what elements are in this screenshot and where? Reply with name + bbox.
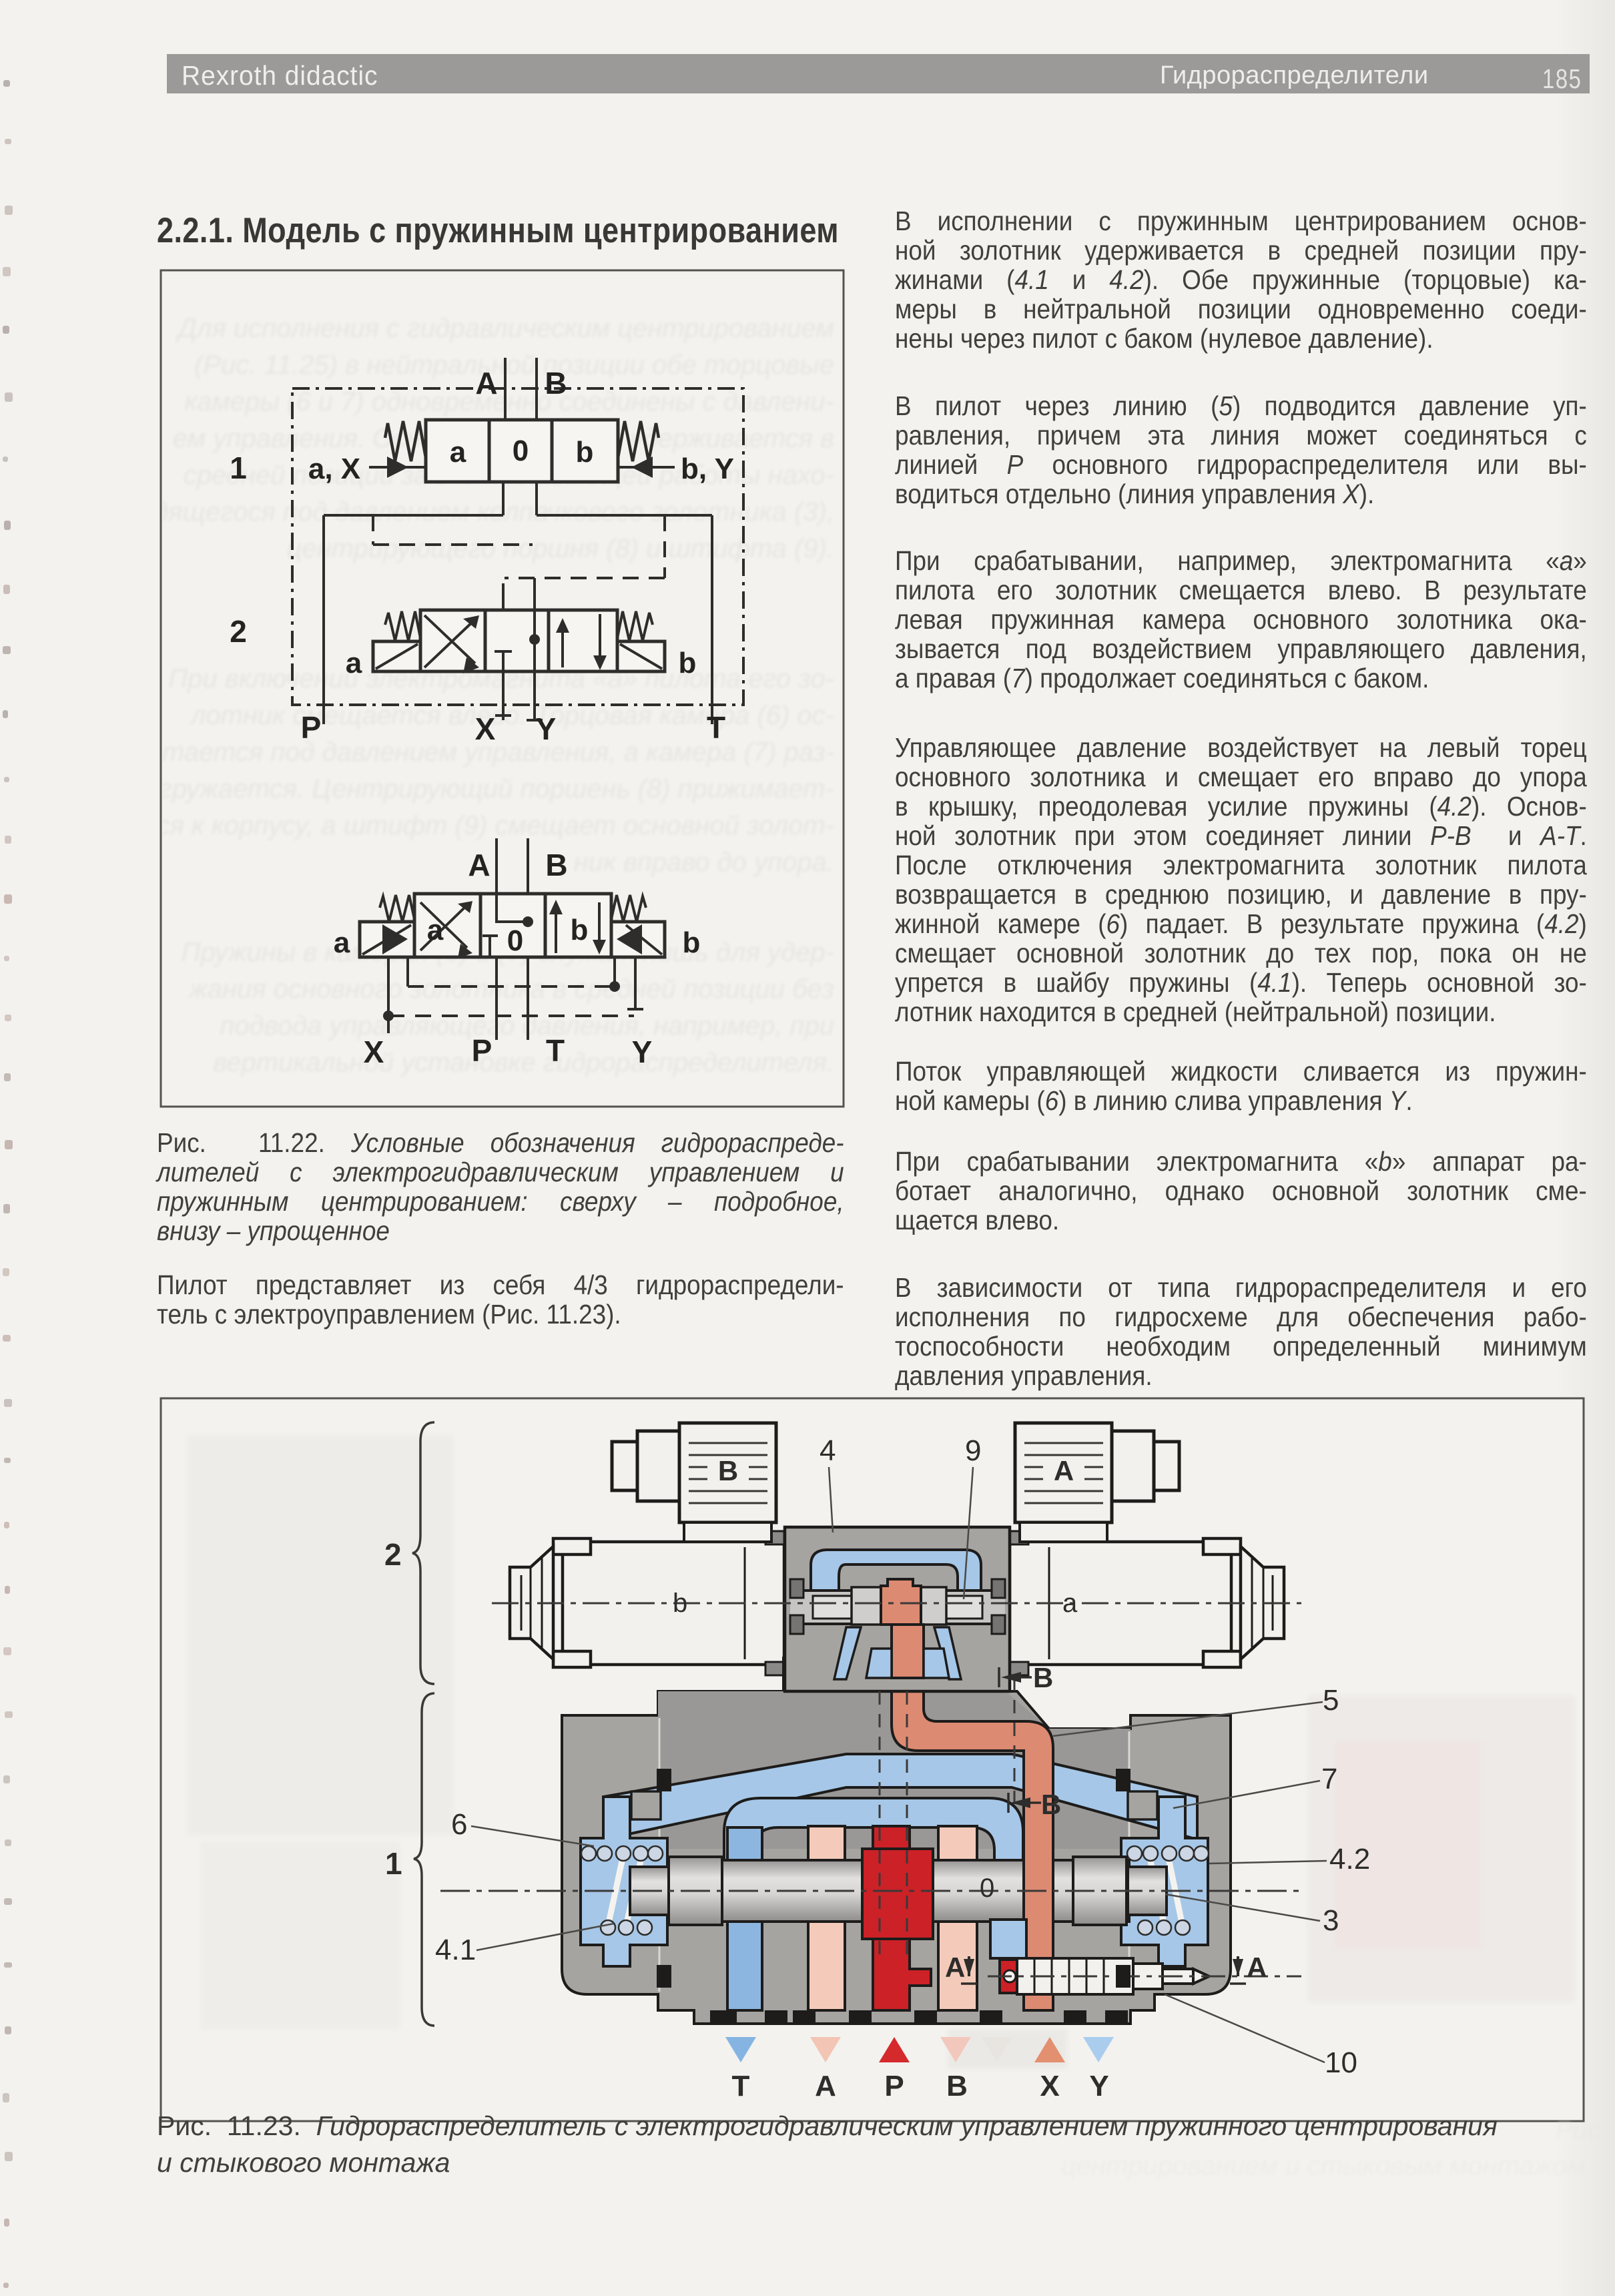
svg-text:P: P	[884, 2070, 904, 2102]
svg-text:Y: Y	[632, 1035, 653, 1069]
svg-text:a: a	[427, 914, 444, 946]
svg-text:0: 0	[507, 924, 523, 957]
svg-text:5: 5	[1323, 1684, 1339, 1717]
svg-text:A: A	[815, 2070, 836, 2102]
svg-text:a: a	[450, 436, 466, 469]
svg-text:центрирующего поршня (8) и шти: центрирующего поршня (8) и штифта (9).	[287, 534, 834, 563]
svg-text:b, Y: b, Y	[681, 453, 734, 485]
svg-text:B: B	[718, 1455, 738, 1486]
svg-text:вертикальной установке гидрора: вертикальной установке гидрораспределите…	[213, 1048, 834, 1077]
svg-text:a: a	[346, 647, 362, 679]
svg-text:b: b	[571, 914, 589, 946]
svg-text:камеры (6 и 7) одновременно со: камеры (6 и 7) одновременно соединены с …	[184, 387, 834, 416]
svg-text:X: X	[364, 1035, 384, 1069]
svg-text:1: 1	[385, 1846, 402, 1881]
svg-text:a, X: a, X	[308, 453, 360, 485]
svg-text:B: B	[1033, 1662, 1053, 1693]
svg-text:B: B	[545, 366, 567, 400]
svg-text:Y: Y	[536, 711, 557, 746]
svg-text:ник вправо до упора.: ник вправо до упора.	[574, 848, 834, 877]
svg-text:2: 2	[384, 1537, 402, 1572]
svg-text:лотник смещается влево. Торцов: лотник смещается влево. Торцовая камера …	[190, 701, 834, 730]
svg-text:тается под давлением управлени: тается под давлением управления, а камер…	[162, 738, 834, 767]
svg-text:b: b	[683, 926, 701, 959]
svg-text:7: 7	[1321, 1763, 1337, 1795]
svg-text:b: b	[673, 1589, 687, 1618]
svg-text:4: 4	[820, 1434, 836, 1467]
svg-text:Y: Y	[1089, 2070, 1108, 2102]
svg-text:A: A	[1247, 1952, 1267, 1983]
svg-text:a: a	[1062, 1589, 1078, 1618]
svg-text:A: A	[1054, 1455, 1074, 1486]
svg-text:2: 2	[230, 614, 247, 649]
svg-text:P: P	[472, 1033, 493, 1068]
svg-text:T: T	[732, 2070, 750, 2102]
svg-text:ся к корпусу, а штифт (9) смещ: ся к корпусу, а штифт (9) смещает основн…	[156, 811, 834, 840]
svg-text:A: A	[945, 1952, 965, 1983]
svg-text:B: B	[545, 848, 567, 882]
svg-text:B: B	[946, 2070, 968, 2102]
svg-text:1: 1	[230, 451, 247, 485]
svg-text:b: b	[576, 436, 594, 469]
svg-text:4.2: 4.2	[1329, 1843, 1370, 1876]
svg-text:P: P	[301, 710, 322, 745]
svg-text:X: X	[1040, 2070, 1059, 2102]
svg-text:6: 6	[451, 1808, 467, 1841]
svg-text:A: A	[468, 848, 490, 882]
svg-text:T: T	[707, 710, 725, 745]
svg-text:9: 9	[965, 1434, 981, 1467]
svg-text:B: B	[1041, 1789, 1061, 1820]
svg-text:10: 10	[1325, 2046, 1357, 2079]
svg-text:3: 3	[1323, 1904, 1339, 1937]
svg-text:A: A	[475, 366, 497, 400]
svg-text:T: T	[546, 1033, 565, 1068]
svg-text:a: a	[334, 926, 350, 959]
svg-text:(Рис. 11.25) в нейтральной поз: (Рис. 11.25) в нейтральной позиции обе т…	[194, 350, 834, 380]
svg-text:жания основного золотника в ср: жания основного золотника в средней пози…	[188, 974, 834, 1004]
svg-text:0: 0	[980, 1874, 994, 1903]
svg-text:0: 0	[513, 435, 529, 467]
svg-text:X: X	[475, 711, 496, 746]
svg-text:b: b	[679, 647, 697, 679]
svg-text:Для исполнения с гидравлически: Для исполнения с гидравлическим центриро…	[176, 314, 834, 343]
svg-text:гружается. Центрирующий поршен: гружается. Центрирующий поршень (8) приж…	[159, 774, 834, 804]
svg-text:дящегося под давлением колпачк: дящегося под давлением колпачкового золо…	[153, 497, 834, 527]
svg-text:4.1: 4.1	[435, 1934, 476, 1966]
